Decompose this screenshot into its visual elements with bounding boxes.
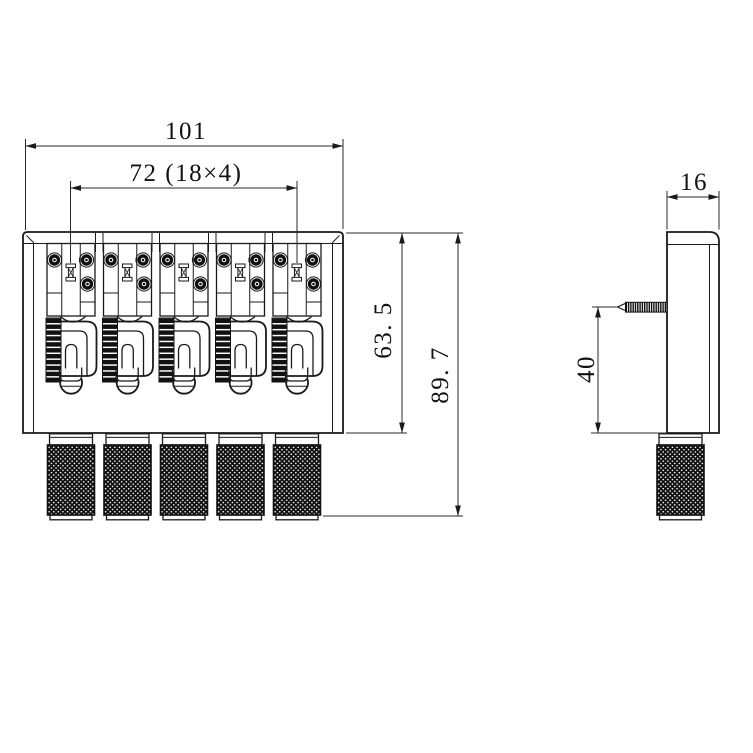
knurled-knob-4 (217, 434, 264, 520)
dim-total-width-label: 101 (165, 118, 207, 145)
technical-drawing-page: 101 72 (18×4) 63. 5 89. 7 (0, 0, 753, 753)
dim-side-width-label: 16 (680, 169, 708, 196)
knurled-knob-3 (161, 434, 208, 520)
knurled-knob-1 (48, 434, 95, 520)
dim-plate-height-label: 63. 5 (370, 301, 397, 359)
intonation-screw (618, 302, 668, 312)
knurled-knob-2 (104, 434, 151, 520)
dim-saddle-spacing-label: 72 (18×4) (130, 160, 243, 187)
knurled-knob-5 (274, 434, 321, 520)
bridge-technical-drawing: 101 72 (18×4) 63. 5 89. 7 (0, 0, 753, 753)
dim-overall-height-label: 89. 7 (427, 346, 454, 404)
dim-screw-height-label: 40 (573, 355, 600, 383)
knurled-knob-side (657, 434, 704, 520)
